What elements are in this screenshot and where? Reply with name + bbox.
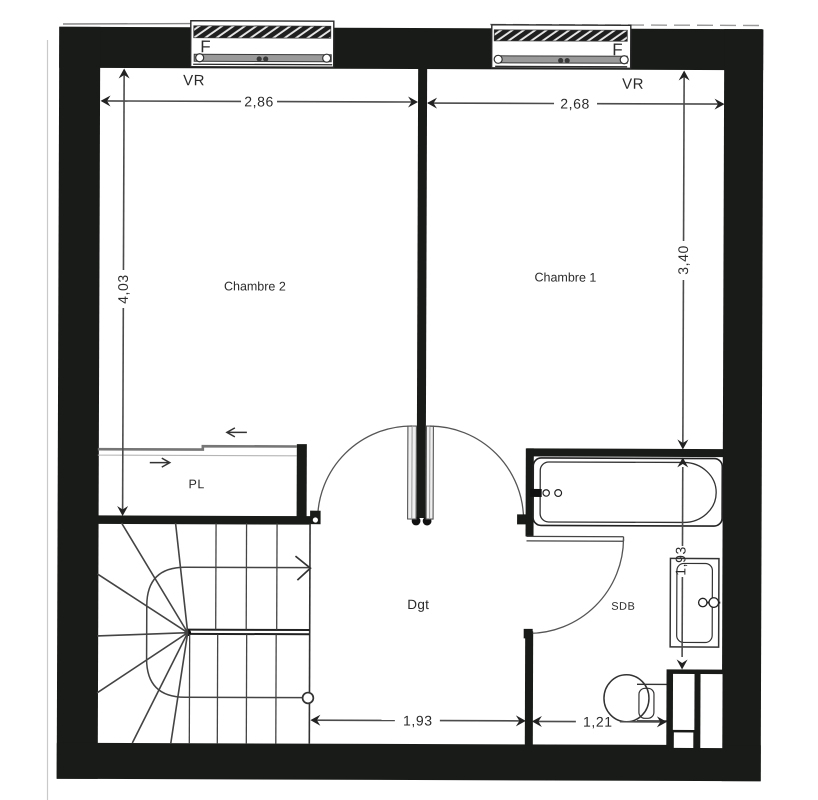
svg-text:SDB: SDB xyxy=(611,601,635,613)
svg-text:Chambre 2: Chambre 2 xyxy=(224,279,286,293)
svg-text:F: F xyxy=(200,37,210,56)
svg-text:PL: PL xyxy=(189,477,205,491)
svg-text:Dgt: Dgt xyxy=(407,597,429,612)
svg-text:1,93: 1,93 xyxy=(672,546,688,576)
svg-text:1,21: 1,21 xyxy=(583,714,613,730)
svg-text:3,40: 3,40 xyxy=(675,245,691,275)
svg-text:1,93: 1,93 xyxy=(403,712,433,728)
svg-text:2,68: 2,68 xyxy=(560,96,590,112)
svg-text:VR: VR xyxy=(183,72,205,89)
svg-text:4,03: 4,03 xyxy=(115,274,131,304)
svg-text:VR: VR xyxy=(622,76,644,93)
svg-text:Chambre 1: Chambre 1 xyxy=(534,270,596,284)
svg-text:2,86: 2,86 xyxy=(244,93,274,109)
